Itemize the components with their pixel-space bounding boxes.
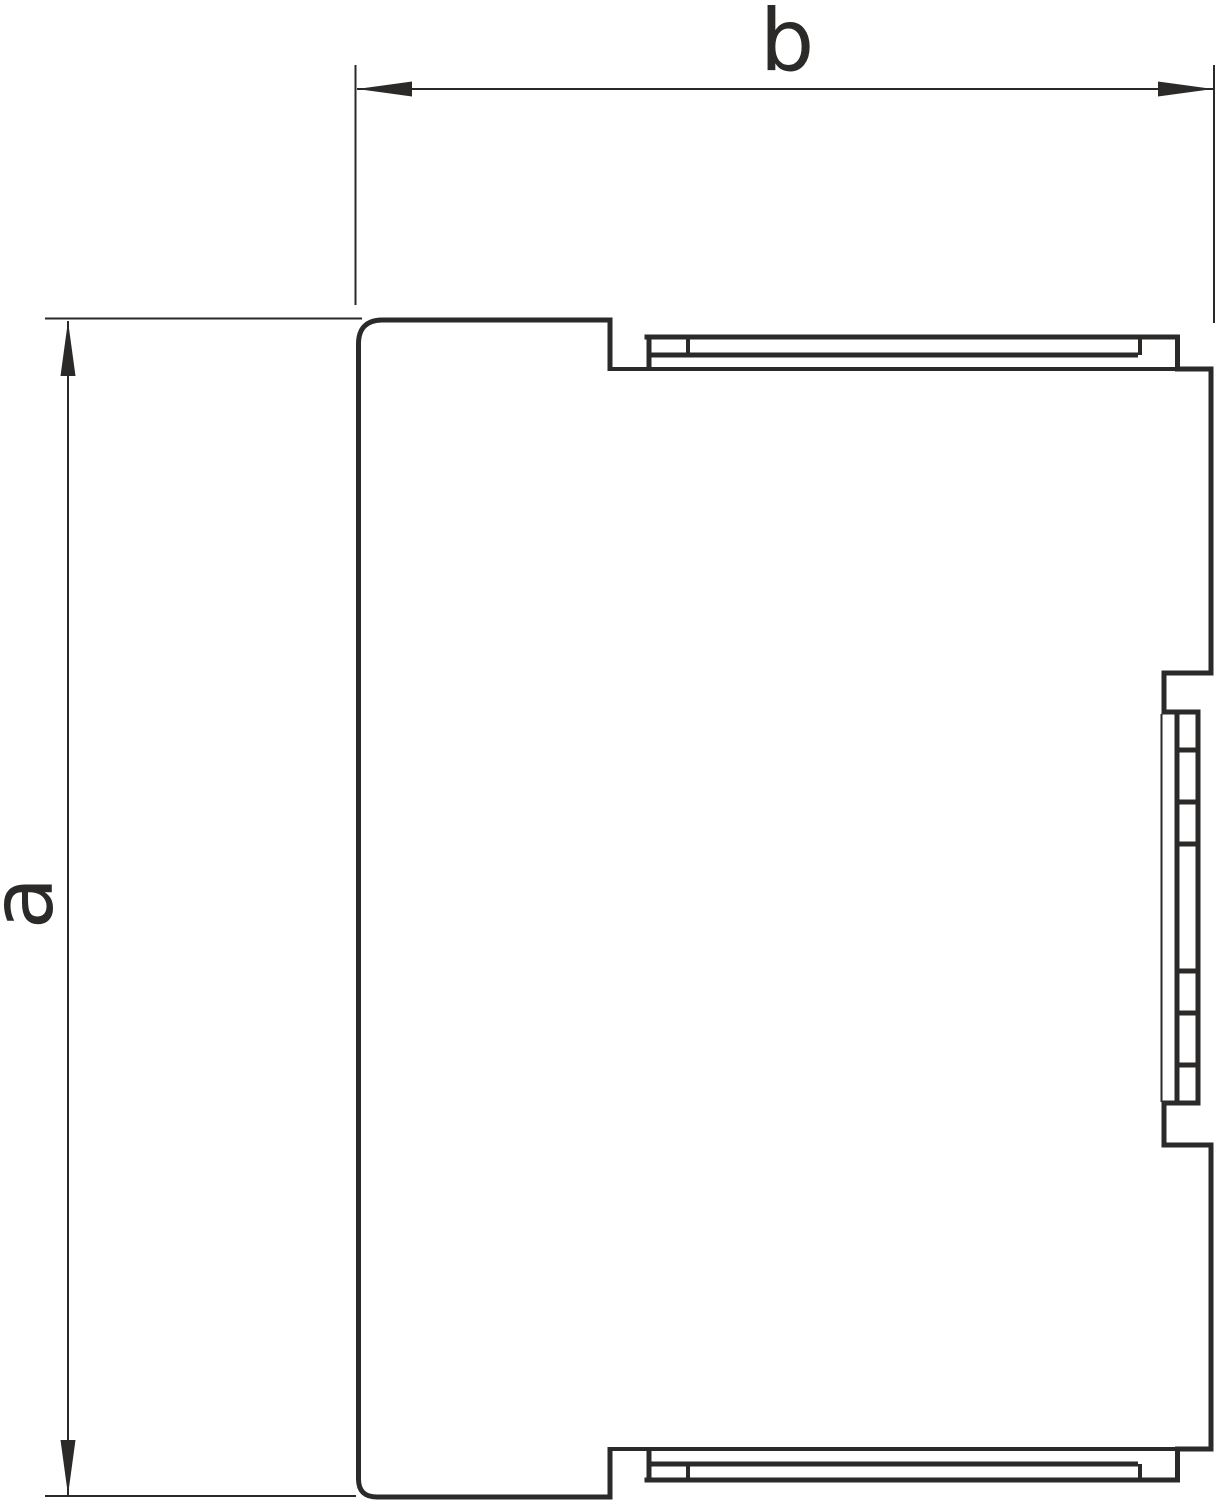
latch-ladder <box>1162 710 1201 1106</box>
technical-drawing-canvas: b a <box>0 0 1216 1500</box>
arrowhead-down-icon <box>61 1440 76 1495</box>
dimension-label-a: a <box>0 877 73 930</box>
dimension-b: b <box>356 0 1215 323</box>
arrowhead-right-icon <box>1158 82 1213 97</box>
outline-right-side <box>1164 369 1211 1449</box>
dimension-label-b: b <box>760 0 815 91</box>
arrowhead-left-icon <box>357 82 412 97</box>
end-piece-outline <box>359 318 1212 1500</box>
arrowhead-up-icon <box>61 321 76 376</box>
top-cover-groove <box>645 335 1181 370</box>
end-piece-side-view-drawing: b a <box>0 0 1216 1500</box>
bottom-cover-groove <box>645 1447 1181 1483</box>
outline-left-face <box>359 320 613 1497</box>
dimension-a: a <box>0 319 362 1497</box>
